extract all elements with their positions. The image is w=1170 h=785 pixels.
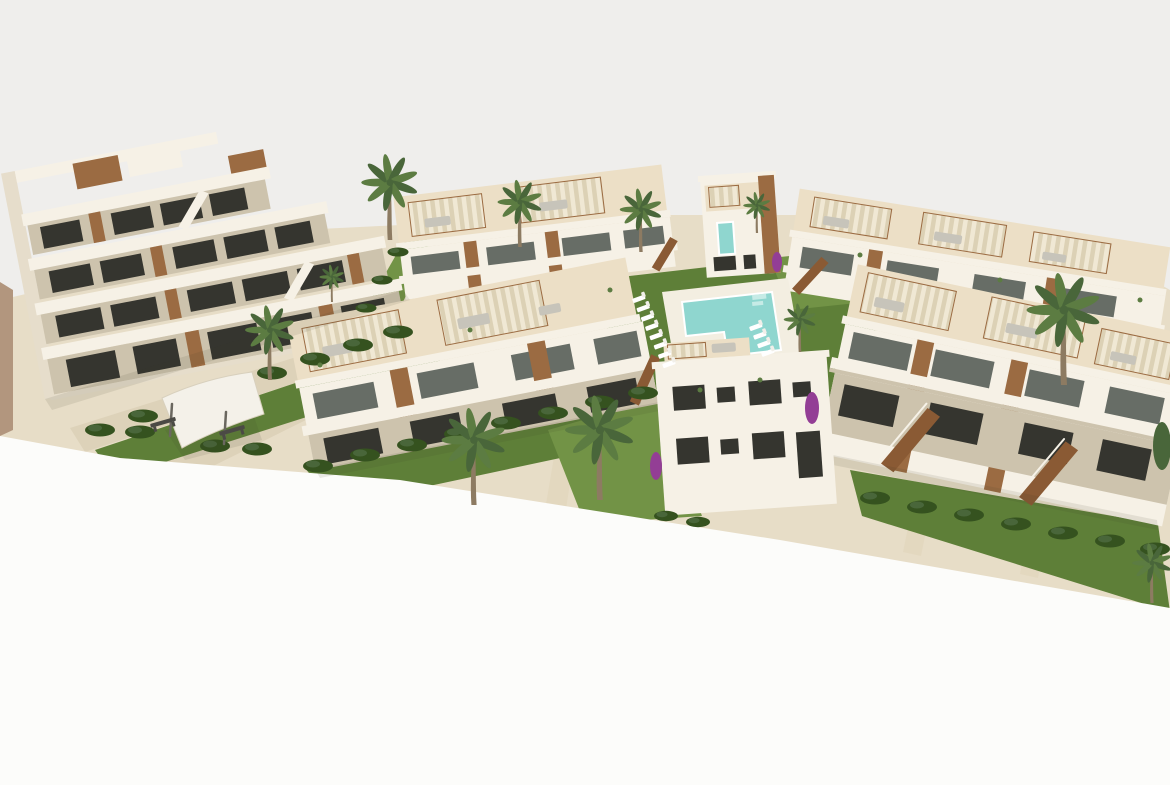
- bougainvillea: [650, 452, 662, 480]
- glass-pool-strip: [717, 222, 735, 255]
- outdoor-sofa: [711, 342, 736, 353]
- architectural-render: [0, 0, 1170, 785]
- pergola: [709, 185, 740, 207]
- bougainvillea: [805, 392, 819, 424]
- render-canvas: [0, 0, 1170, 785]
- left-boundary-wall: [0, 282, 13, 436]
- villa-back-center: [698, 171, 783, 278]
- bougainvillea: [772, 252, 782, 272]
- entrance-door: [796, 431, 823, 479]
- pergola: [667, 342, 706, 359]
